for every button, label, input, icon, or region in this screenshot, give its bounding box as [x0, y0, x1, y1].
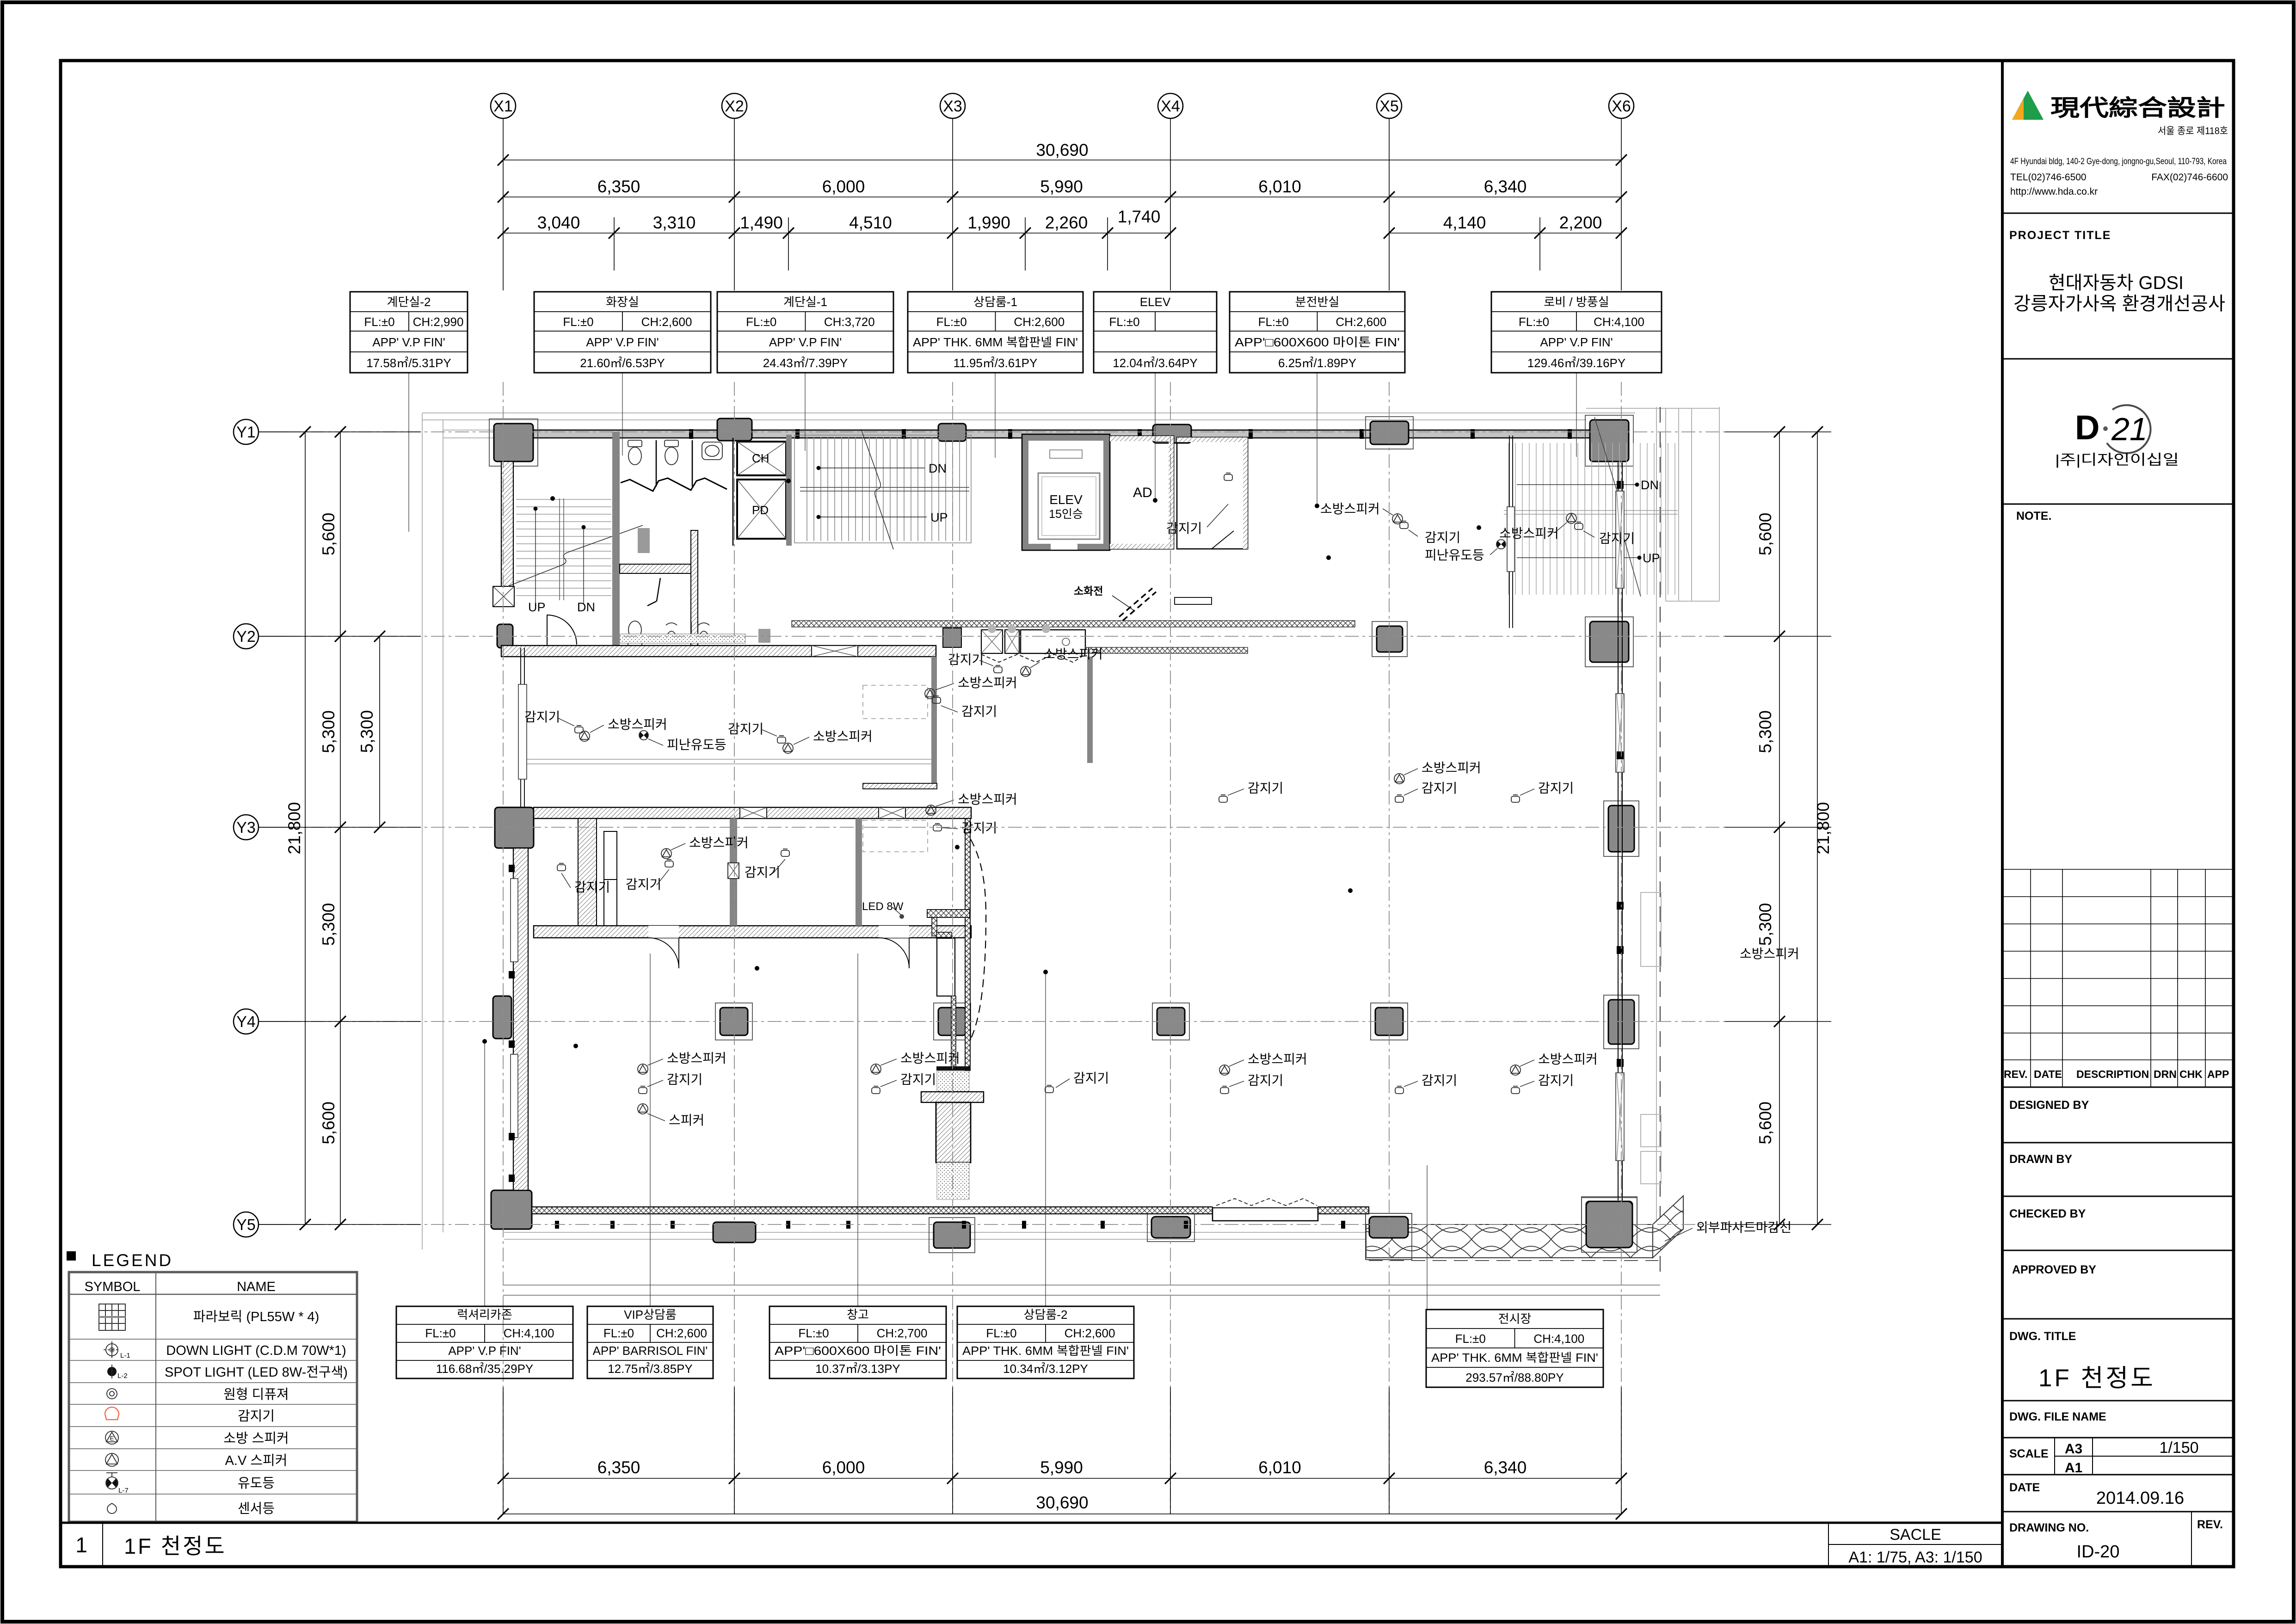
svg-text:L-1: L-1	[120, 1352, 130, 1359]
svg-text:UP: UP	[1643, 551, 1660, 565]
svg-text:|주|디자인이십일: |주|디자인이십일	[2055, 452, 2179, 468]
svg-text:CH:2,990: CH:2,990	[413, 315, 464, 329]
svg-text:감지기: 감지기	[1538, 781, 1574, 795]
svg-text:유도등: 유도등	[238, 1476, 275, 1491]
svg-text:CH:2,600: CH:2,600	[1336, 315, 1386, 329]
svg-text:소방스피커: 소방스피커	[608, 717, 667, 732]
svg-text:FL:±0: FL:±0	[603, 1326, 634, 1340]
svg-text:30,690: 30,690	[1036, 141, 1088, 160]
svg-text:1F 천정도: 1F 천정도	[124, 1534, 227, 1558]
svg-text:L-2: L-2	[117, 1372, 128, 1380]
svg-text:APPROVED BY: APPROVED BY	[2012, 1263, 2096, 1276]
svg-text:APP' THK. 6MM 복합판넬 FIN': APP' THK. 6MM 복합판넬 FIN'	[962, 1344, 1129, 1358]
svg-text:FL:±0: FL:±0	[1455, 1332, 1486, 1346]
svg-text:DN: DN	[929, 461, 947, 475]
svg-text:CH: CH	[752, 451, 769, 465]
svg-text:감지기: 감지기	[238, 1409, 275, 1424]
svg-text:소방스피커: 소방스피커	[900, 1051, 960, 1065]
svg-text:화장실: 화장실	[606, 295, 639, 309]
svg-text:2,260: 2,260	[1045, 213, 1088, 232]
svg-text:1,740: 1,740	[1118, 207, 1161, 226]
svg-text:1,990: 1,990	[967, 213, 1010, 232]
svg-text:감지기: 감지기	[948, 652, 984, 667]
svg-text:소방스피커: 소방스피커	[1320, 502, 1380, 516]
svg-text:감지기: 감지기	[1248, 781, 1283, 795]
svg-text:감지기: 감지기	[1073, 1071, 1109, 1085]
svg-text:1F 천정도: 1F 천정도	[2038, 1365, 2155, 1392]
svg-text:APP' THK. 6MM 복합판넬 FIN': APP' THK. 6MM 복합판넬 FIN'	[1431, 1351, 1598, 1365]
svg-text:1/150: 1/150	[2159, 1439, 2198, 1457]
svg-text:감지기: 감지기	[1538, 1073, 1574, 1088]
svg-text:Y4: Y4	[236, 1013, 256, 1031]
svg-text:감지기: 감지기	[626, 877, 661, 892]
svg-text:X2: X2	[725, 98, 744, 115]
svg-text:VIP상담룸: VIP상담룸	[624, 1308, 677, 1322]
svg-text:피난유도등: 피난유도등	[1425, 548, 1484, 562]
svg-text:5,600: 5,600	[1756, 1101, 1775, 1144]
svg-text:FL:±0: FL:±0	[936, 315, 967, 329]
svg-text:상담룸-1: 상담룸-1	[973, 295, 1017, 309]
svg-text:소방스피커: 소방스피커	[1538, 1052, 1598, 1066]
svg-text:NOTE.: NOTE.	[2016, 510, 2051, 523]
svg-text:DWG. TITLE: DWG. TITLE	[2009, 1330, 2076, 1343]
svg-text:12.75㎡/3.85PY: 12.75㎡/3.85PY	[608, 1362, 693, 1376]
svg-text:ELEV: ELEV	[1049, 492, 1083, 507]
svg-text:LEGEND: LEGEND	[92, 1251, 173, 1270]
svg-text:D: D	[2075, 408, 2099, 447]
svg-text:현대자동차 GDSI: 현대자동차 GDSI	[2049, 273, 2184, 293]
svg-text:DATE: DATE	[2009, 1481, 2040, 1494]
svg-text:30,690: 30,690	[1036, 1493, 1088, 1512]
svg-text:CH:2,600: CH:2,600	[641, 315, 692, 329]
svg-text:센서등: 센서등	[238, 1501, 275, 1516]
svg-text:116.68㎡/35.29PY: 116.68㎡/35.29PY	[436, 1362, 534, 1376]
svg-text:계단실-1: 계단실-1	[783, 295, 827, 309]
svg-text:6,350: 6,350	[597, 1458, 640, 1477]
svg-text:APP' V.P FIN': APP' V.P FIN'	[769, 335, 842, 349]
svg-text:21,800: 21,800	[285, 802, 304, 854]
svg-text:CH:4,100: CH:4,100	[1533, 1332, 1584, 1346]
svg-text:소방스피커: 소방스피커	[1740, 947, 1799, 961]
svg-text:DRAWING NO.: DRAWING NO.	[2009, 1521, 2089, 1534]
svg-text:소방스피커: 소방스피커	[958, 676, 1017, 690]
svg-text:UP: UP	[528, 600, 546, 614]
svg-text:DN: DN	[1641, 478, 1659, 492]
svg-text:감지기: 감지기	[1422, 781, 1457, 795]
svg-text:APP' THK. 6MM 복합판넬 FIN': APP' THK. 6MM 복합판넬 FIN'	[913, 335, 1078, 349]
svg-text:강릉자가사옥 환경개선공사: 강릉자가사옥 환경개선공사	[2013, 294, 2225, 314]
svg-text:10.34㎡/3.12PY: 10.34㎡/3.12PY	[1003, 1362, 1088, 1376]
svg-text:4,510: 4,510	[849, 213, 892, 232]
svg-text:SPOT LIGHT (LED 8W-전구색): SPOT LIGHT (LED 8W-전구색)	[165, 1365, 348, 1380]
svg-text:FAX(02)746-6600: FAX(02)746-6600	[2151, 172, 2228, 183]
svg-text:Y2: Y2	[236, 628, 256, 646]
svg-text:FL:±0: FL:±0	[364, 315, 394, 329]
svg-text:감지기: 감지기	[1248, 1073, 1283, 1088]
svg-text:E: E	[110, 1435, 114, 1442]
svg-text:10.37㎡/3.13PY: 10.37㎡/3.13PY	[815, 1362, 900, 1376]
svg-text:계단실-2: 계단실-2	[387, 295, 431, 309]
svg-text:LED 8W: LED 8W	[862, 900, 904, 913]
svg-text:APP' V.P FIN': APP' V.P FIN'	[586, 335, 659, 349]
svg-text:UP: UP	[930, 511, 948, 524]
svg-text:SCALE: SCALE	[2009, 1447, 2049, 1460]
svg-text:21,800: 21,800	[1814, 802, 1833, 854]
svg-text:3,040: 3,040	[537, 213, 580, 232]
svg-text:TEL(02)746-6500: TEL(02)746-6500	[2010, 172, 2087, 183]
svg-text:DRAWN BY: DRAWN BY	[2009, 1153, 2072, 1166]
svg-text:1: 1	[75, 1533, 87, 1557]
svg-text:AD: AD	[1133, 485, 1152, 500]
svg-text:6,010: 6,010	[1258, 177, 1301, 196]
svg-text:소방스피커: 소방스피커	[813, 729, 873, 744]
svg-text:CHK: CHK	[2179, 1068, 2203, 1080]
svg-text:21.60㎡/6.53PY: 21.60㎡/6.53PY	[580, 356, 665, 370]
svg-text:REV.: REV.	[2004, 1068, 2028, 1080]
svg-text:CH:2,600: CH:2,600	[1014, 315, 1065, 329]
svg-text:APP' V.P FIN': APP' V.P FIN'	[372, 335, 445, 349]
svg-text:A3: A3	[2065, 1441, 2082, 1457]
svg-text:PROJECT TITLE: PROJECT TITLE	[2009, 229, 2111, 242]
svg-text:소방스피커: 소방스피커	[1422, 761, 1481, 775]
svg-text:5,990: 5,990	[1040, 177, 1083, 196]
svg-text:21: 21	[2111, 411, 2148, 447]
svg-text:http://www.hda.co.kr: http://www.hda.co.kr	[2010, 186, 2098, 197]
svg-text:소화전: 소화전	[1074, 585, 1103, 597]
svg-text:24.43㎡/7.39PY: 24.43㎡/7.39PY	[763, 356, 848, 370]
svg-text:17.58㎡/5.31PY: 17.58㎡/5.31PY	[366, 356, 451, 370]
svg-text:소방스피커: 소방스피커	[667, 1051, 726, 1065]
svg-text:A.V 스피커: A.V 스피커	[225, 1453, 288, 1468]
svg-text:X5: X5	[1379, 98, 1399, 115]
svg-text:APP' V.P FIN': APP' V.P FIN'	[1540, 335, 1613, 349]
svg-text:CH:2,700: CH:2,700	[877, 1326, 928, 1340]
svg-text:FL:±0: FL:±0	[1109, 315, 1139, 329]
svg-text:5,600: 5,600	[319, 1101, 338, 1144]
svg-text:감지기: 감지기	[1166, 521, 1202, 535]
svg-text:5,300: 5,300	[1756, 710, 1775, 753]
svg-text:5,600: 5,600	[319, 513, 338, 556]
svg-text:6,350: 6,350	[597, 177, 640, 196]
svg-text:DWG. FILE NAME: DWG. FILE NAME	[2009, 1410, 2106, 1423]
svg-text:APP'□600X600 마이톤 FIN': APP'□600X600 마이톤 FIN'	[1235, 335, 1400, 349]
svg-text:피난유도등: 피난유도등	[667, 738, 726, 752]
svg-text:전시장: 전시장	[1498, 1312, 1532, 1326]
svg-text:감지기: 감지기	[1425, 530, 1460, 545]
svg-text:1,490: 1,490	[740, 213, 783, 232]
svg-text:FL:±0: FL:±0	[798, 1326, 829, 1340]
svg-text:129.46㎡/39.16PY: 129.46㎡/39.16PY	[1527, 356, 1626, 370]
svg-text:로비 / 방풍실: 로비 / 방풍실	[1544, 295, 1609, 309]
svg-text:6,000: 6,000	[822, 1458, 865, 1477]
svg-text:Y3: Y3	[236, 819, 256, 837]
svg-text:5,300: 5,300	[319, 710, 338, 753]
svg-text:293.57㎡/88.80PY: 293.57㎡/88.80PY	[1465, 1371, 1564, 1384]
svg-text:스피커: 스피커	[669, 1113, 704, 1127]
svg-text:5,990: 5,990	[1040, 1458, 1083, 1477]
svg-text:감지기: 감지기	[745, 865, 780, 880]
svg-text:6,000: 6,000	[822, 177, 865, 196]
svg-text:APP'□600X600 마이톤 FIN': APP'□600X600 마이톤 FIN'	[775, 1344, 941, 1358]
svg-text:분전반실: 분전반실	[1295, 295, 1340, 309]
svg-text:A1: 1/75, A3: 1/150: A1: 1/75, A3: 1/150	[1848, 1549, 1982, 1566]
svg-text:SYMBOL: SYMBOL	[85, 1280, 141, 1294]
svg-text:REV.: REV.	[2197, 1518, 2223, 1531]
svg-text:DESIGNED BY: DESIGNED BY	[2009, 1099, 2089, 1112]
svg-text:ELEV: ELEV	[1140, 295, 1171, 309]
svg-text:5,300: 5,300	[357, 710, 376, 753]
svg-text:PD: PD	[752, 503, 769, 517]
svg-text:원형 디퓨져: 원형 디퓨져	[223, 1387, 289, 1402]
svg-text:DESCRIPTION: DESCRIPTION	[2076, 1068, 2149, 1080]
svg-text:FL:±0: FL:±0	[1519, 315, 1549, 329]
svg-text:소방스피커: 소방스피커	[1248, 1052, 1307, 1066]
svg-text:Y1: Y1	[236, 424, 256, 441]
svg-text:파라보릭 (PL55W * 4): 파라보릭 (PL55W * 4)	[193, 1310, 320, 1324]
svg-text:감지기: 감지기	[961, 704, 997, 719]
svg-text:NAME: NAME	[237, 1280, 276, 1294]
svg-text:CH:4,100: CH:4,100	[1594, 315, 1644, 329]
svg-text:CH:2,600: CH:2,600	[1065, 1326, 1115, 1340]
svg-text:CH:2,600: CH:2,600	[656, 1326, 707, 1340]
svg-text:A1: A1	[2065, 1460, 2082, 1476]
svg-text:소방스피커: 소방스피커	[689, 836, 749, 850]
svg-text:CH:3,720: CH:3,720	[824, 315, 875, 329]
svg-text:FL:±0: FL:±0	[746, 315, 776, 329]
svg-text:X6: X6	[1612, 98, 1631, 115]
svg-text:감지기: 감지기	[574, 880, 610, 894]
svg-text:L-7: L-7	[118, 1487, 129, 1495]
svg-text:3,310: 3,310	[653, 213, 696, 232]
svg-text:소방스피커: 소방스피커	[958, 792, 1017, 806]
svg-text:5,600: 5,600	[1756, 513, 1775, 556]
svg-text:FL:±0: FL:±0	[986, 1326, 1016, 1340]
svg-text:X1: X1	[493, 98, 513, 115]
svg-text:15인승: 15인승	[1049, 508, 1083, 521]
svg-text:X3: X3	[943, 98, 962, 115]
svg-text:DRN: DRN	[2154, 1068, 2177, 1080]
svg-text:2014.09.16: 2014.09.16	[2096, 1489, 2184, 1508]
svg-text:2,200: 2,200	[1559, 213, 1602, 232]
svg-text:감지기: 감지기	[1422, 1073, 1457, 1088]
svg-text:소방스피커: 소방스피커	[1043, 647, 1103, 661]
svg-text:6,340: 6,340	[1484, 177, 1527, 196]
svg-text:감지기: 감지기	[728, 722, 763, 736]
svg-text:Y5: Y5	[236, 1216, 256, 1234]
svg-text:서울 종로 제118호: 서울 종로 제118호	[2158, 126, 2228, 136]
svg-text:감지기: 감지기	[1599, 531, 1635, 546]
svg-text:소방 스피커: 소방 스피커	[223, 1431, 289, 1446]
svg-text:CH:4,100: CH:4,100	[504, 1326, 554, 1340]
svg-text:DN: DN	[577, 600, 595, 614]
svg-text:X4: X4	[1161, 98, 1180, 115]
svg-text:11.95㎡/3.61PY: 11.95㎡/3.61PY	[954, 356, 1038, 370]
svg-text:감지기: 감지기	[524, 710, 560, 724]
svg-text:소방스피커: 소방스피커	[1499, 526, 1559, 541]
svg-text:APP' BARRISOL FIN': APP' BARRISOL FIN'	[593, 1344, 708, 1358]
svg-text:DOWN LIGHT (C.D.M 70W*1): DOWN LIGHT (C.D.M 70W*1)	[166, 1343, 346, 1358]
svg-text:APP' V.P FIN': APP' V.P FIN'	[448, 1344, 521, 1358]
svg-text:現代綜合設計: 現代綜合設計	[2050, 96, 2225, 121]
svg-text:4,140: 4,140	[1443, 213, 1486, 232]
svg-text:FL:±0: FL:±0	[425, 1326, 456, 1340]
svg-text:DATE: DATE	[2034, 1068, 2062, 1080]
svg-text:6,010: 6,010	[1258, 1458, 1301, 1477]
svg-text:ID-20: ID-20	[2077, 1542, 2120, 1562]
svg-text:6.25㎡/1.89PY: 6.25㎡/1.89PY	[1278, 356, 1356, 370]
svg-text:CHECKED BY: CHECKED BY	[2009, 1207, 2086, 1220]
svg-text:감지기: 감지기	[667, 1072, 702, 1087]
svg-text:상담룸-2: 상담룸-2	[1024, 1308, 1068, 1322]
svg-text:FL:±0: FL:±0	[563, 315, 593, 329]
svg-text:SACLE: SACLE	[1890, 1526, 1941, 1544]
svg-text:6,340: 6,340	[1484, 1458, 1527, 1477]
svg-text:12.04㎡/3.64PY: 12.04㎡/3.64PY	[1113, 356, 1198, 370]
svg-text:감지기: 감지기	[961, 821, 997, 835]
svg-text:창고: 창고	[847, 1308, 869, 1322]
svg-text:5,300: 5,300	[1756, 903, 1775, 946]
svg-text:APP: APP	[2207, 1068, 2229, 1080]
svg-text:럭셔리카존: 럭셔리카존	[457, 1308, 512, 1322]
svg-text:5,300: 5,300	[319, 903, 338, 946]
svg-text:FL:±0: FL:±0	[1258, 315, 1289, 329]
svg-text:감지기: 감지기	[900, 1072, 936, 1087]
svg-text:4F Hyundai bldg, 140-2 Gye-do: 4F Hyundai bldg, 140-2 Gye-dong, jongno-…	[2010, 157, 2227, 166]
